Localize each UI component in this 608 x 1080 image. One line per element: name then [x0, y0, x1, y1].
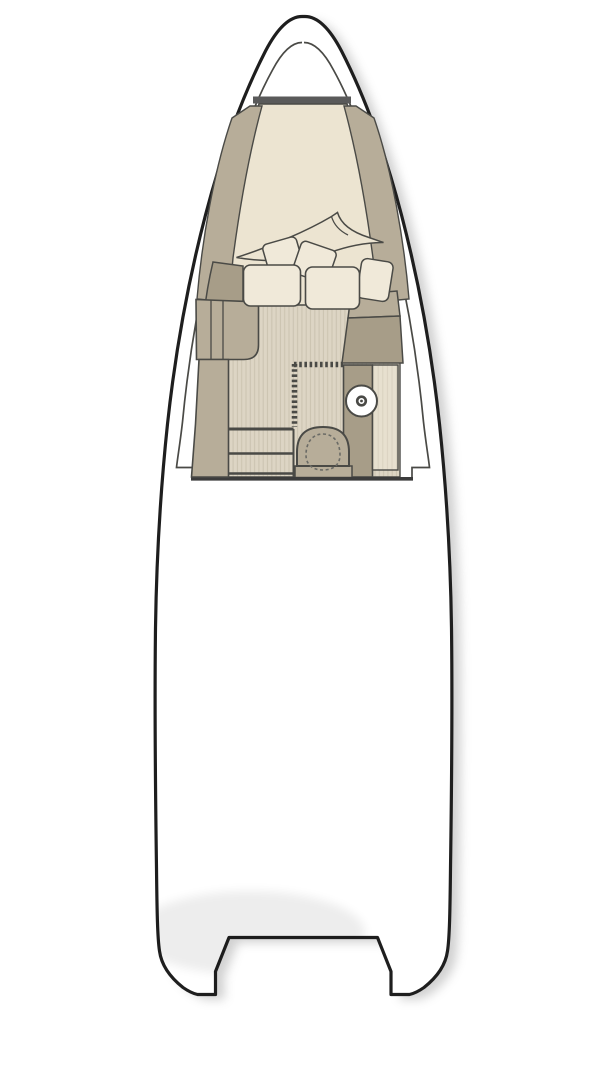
side-locker-starboard-lower	[342, 316, 403, 363]
pillow-port	[244, 265, 301, 306]
port-cabinet	[196, 300, 259, 360]
bow-bulkhead-bar	[253, 97, 351, 104]
boat-floor-plan-drawing	[0, 0, 608, 1080]
toilet-seat	[297, 427, 349, 466]
boat-floor-plan	[0, 0, 608, 1080]
sink-drain-dot	[360, 400, 363, 403]
starboard-counter	[373, 365, 399, 470]
pillow-aft	[356, 258, 394, 303]
pillow-starboard	[306, 267, 360, 309]
stern-interior-shading	[135, 891, 365, 975]
toilet-base	[295, 466, 352, 478]
